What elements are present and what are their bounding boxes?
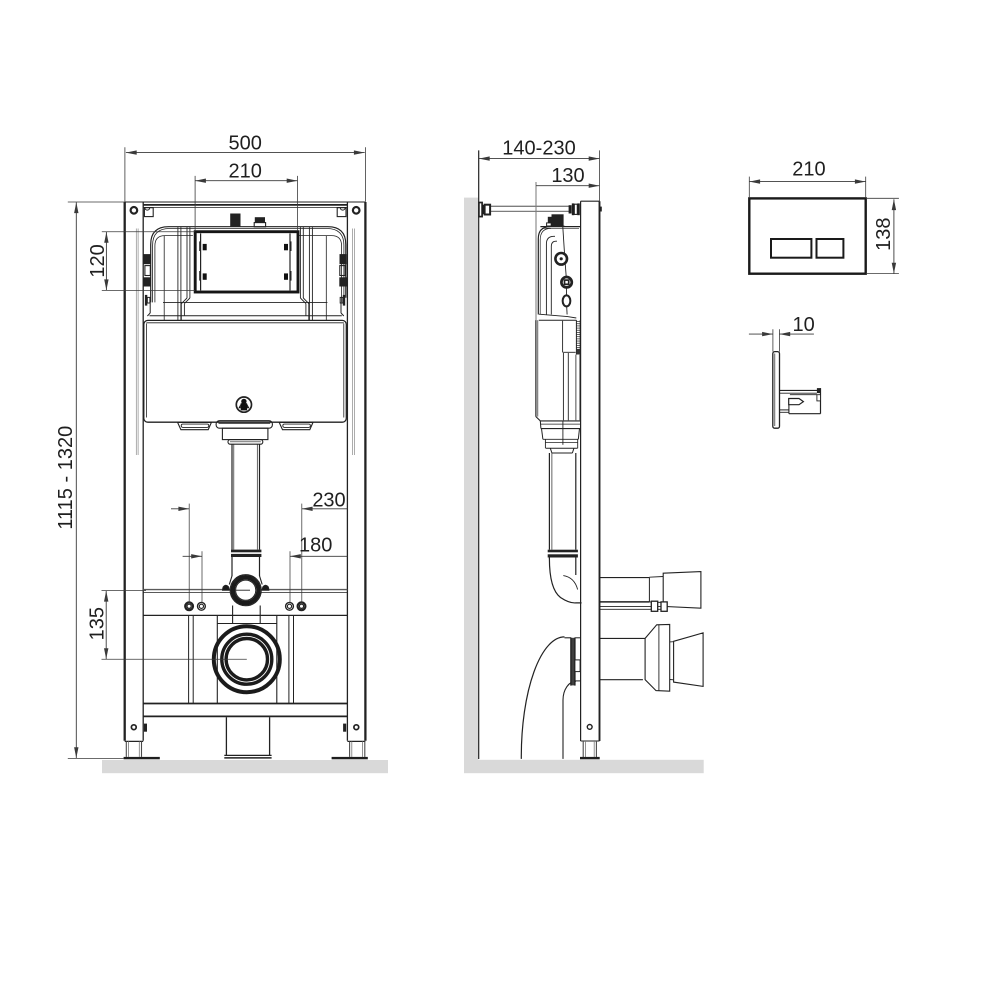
svg-text:130: 130 <box>551 165 584 187</box>
svg-text:1115 - 1320: 1115 - 1320 <box>55 426 77 530</box>
svg-text:135: 135 <box>87 607 109 640</box>
svg-text:10: 10 <box>792 314 814 336</box>
svg-text:120: 120 <box>87 244 109 277</box>
svg-text:210: 210 <box>792 159 825 181</box>
svg-text:500: 500 <box>229 132 262 154</box>
svg-text:138: 138 <box>873 218 895 251</box>
svg-text:230: 230 <box>312 489 345 511</box>
svg-text:180: 180 <box>299 535 332 557</box>
svg-text:140-230: 140-230 <box>502 138 575 160</box>
svg-text:210: 210 <box>229 160 262 182</box>
